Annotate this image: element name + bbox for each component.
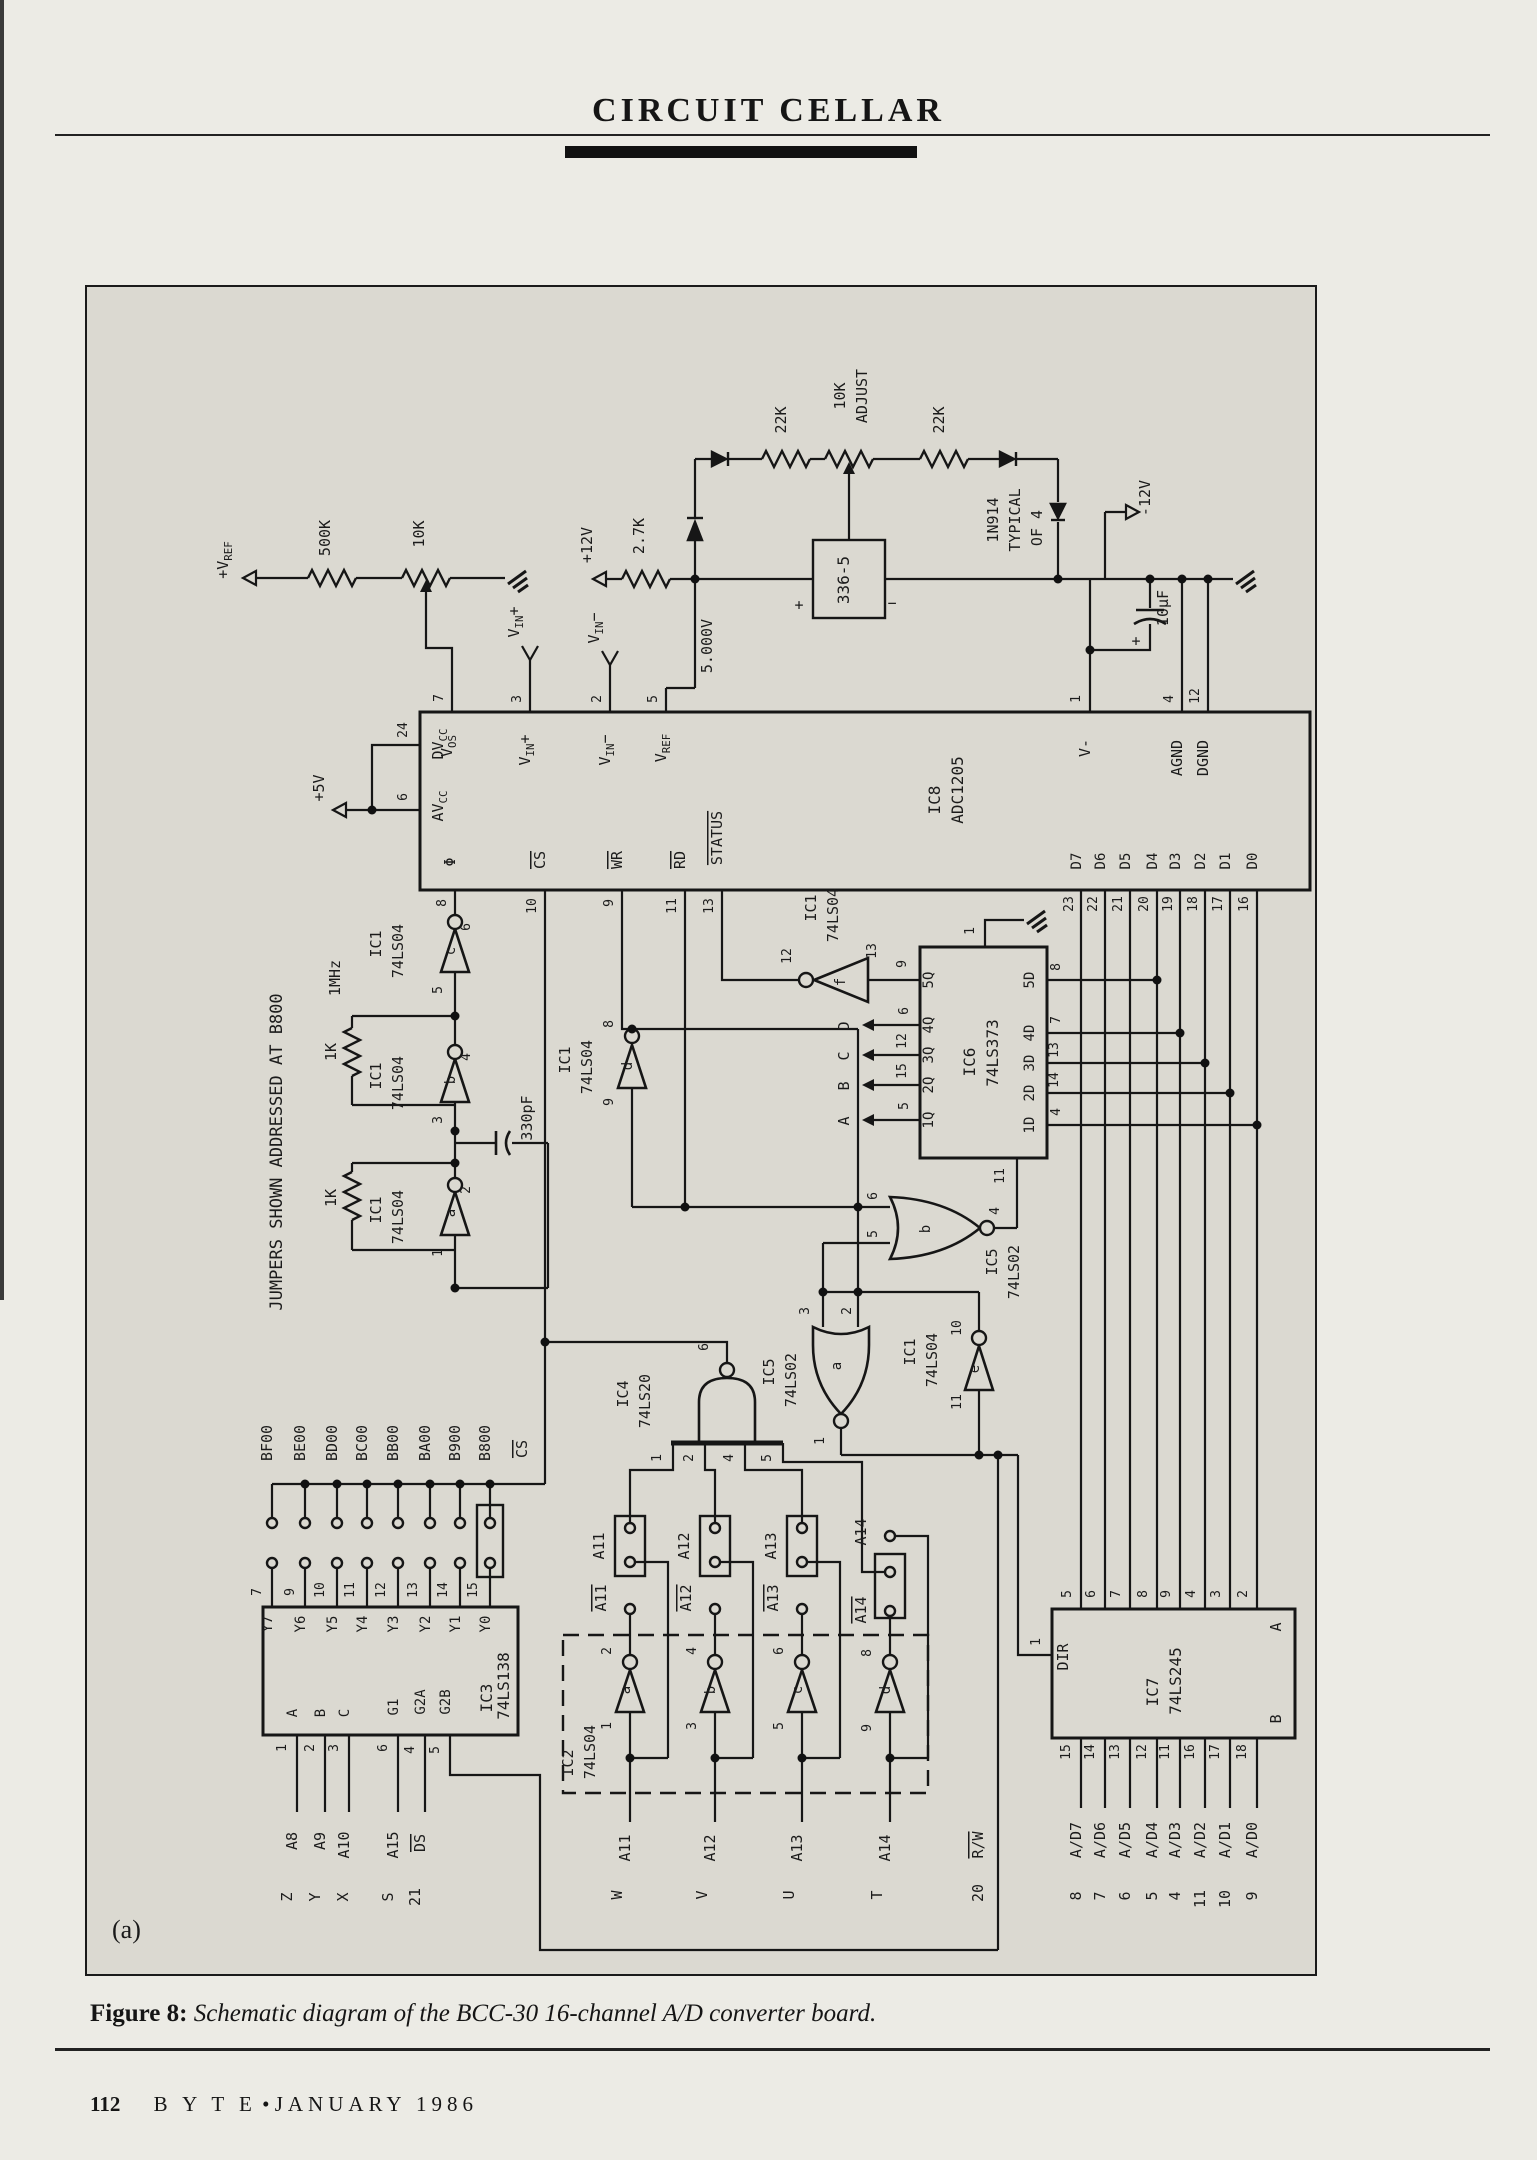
- schematic-label: 6: [396, 793, 411, 801]
- magazine-name: B Y T E: [154, 2092, 257, 2116]
- schematic-label: 9: [602, 1098, 617, 1106]
- schematic-label: 7: [1109, 1590, 1124, 1598]
- schematic-label: 5: [431, 986, 446, 994]
- schematic-label: 10: [313, 1582, 328, 1598]
- schematic-label: 9: [602, 899, 617, 907]
- schematic-label: 74LS02: [1005, 1245, 1023, 1299]
- schematic-label: V: [693, 1890, 711, 1899]
- schematic-label: a: [443, 1209, 459, 1217]
- figure-caption: Figure 8: Schematic diagram of the BCC-3…: [90, 2000, 1490, 2028]
- schematic-label: VREF: [652, 734, 673, 763]
- schematic-label: 13: [1047, 1042, 1062, 1058]
- schematic-label: A: [285, 1708, 301, 1717]
- schematic-label: Y4: [355, 1616, 371, 1633]
- schematic-label: b: [443, 1076, 459, 1084]
- schematic-label: CS: [513, 1440, 531, 1458]
- schematic-label: 8: [1067, 1891, 1085, 1900]
- schematic-label: 1N914: [984, 497, 1002, 542]
- schematic-label: 7: [1091, 1891, 1109, 1900]
- schematic-label: 74LS04: [389, 1056, 407, 1110]
- schematic-label: 15: [466, 1582, 481, 1598]
- schematic-label: VIN+: [505, 606, 526, 637]
- wiper-arrows: [420, 462, 874, 1126]
- schematic-label: 7: [1049, 1016, 1064, 1024]
- schematic-label: CS: [531, 851, 549, 869]
- figure-caption-text: Schematic diagram of the BCC-30 16-chann…: [194, 2000, 877, 2027]
- ic2-dashed-box: [563, 1635, 928, 1793]
- schematic-label: 10: [1216, 1890, 1234, 1908]
- footer-bullet: •: [262, 2092, 269, 2116]
- schematic-label: 23: [1062, 896, 1077, 912]
- schematic-label: A12: [675, 1532, 693, 1559]
- schematic-label: 3: [798, 1307, 813, 1315]
- schematic-label: Y3: [386, 1616, 402, 1633]
- schematic-label: 5.000V: [698, 619, 716, 673]
- schematic-label: ADC1205: [948, 756, 967, 823]
- page-number: 112: [90, 2092, 120, 2116]
- schematic-label: 10K: [831, 382, 849, 409]
- schematic-label: T: [868, 1890, 886, 1899]
- schematic-label: 6: [866, 1192, 881, 1200]
- schematic-label: 4: [459, 1053, 474, 1061]
- schematic-label: 11: [665, 898, 680, 914]
- schematic-label: 15: [895, 1063, 910, 1079]
- schematic-label: U: [780, 1890, 798, 1899]
- schematic-label: 5: [866, 1230, 881, 1238]
- schematic-label: -12V: [1136, 480, 1154, 516]
- schematic-label: 12: [1135, 1744, 1150, 1760]
- schematic-label: DGND: [1194, 740, 1212, 776]
- schematic-label: Z: [278, 1892, 296, 1901]
- schematic-label: 5D: [1022, 972, 1038, 989]
- schematic-label: A/D6: [1091, 1822, 1109, 1858]
- schematic-label: D3: [1168, 853, 1184, 870]
- schematic-label: 22K: [772, 406, 790, 433]
- schematic-label: OF 4: [1028, 510, 1046, 546]
- schematic-label: 12: [1188, 688, 1203, 704]
- schematic-label: 18: [1235, 1744, 1250, 1760]
- schematic-label: IC1: [901, 1338, 919, 1365]
- schematic-label: B800: [476, 1425, 494, 1461]
- schematic-label: b: [918, 1225, 934, 1233]
- schematic-label: a: [829, 1362, 845, 1370]
- schematic-label: 6: [1084, 1590, 1099, 1598]
- schematic-label: 3: [327, 1744, 342, 1752]
- schematic-label: AGND: [1168, 740, 1186, 776]
- schematic-labels: +VREF500K10K7+12V2.7K3VIN+VIN−255.000V22…: [214, 369, 1285, 1908]
- schematic-label: 14: [1047, 1072, 1062, 1088]
- schematic-label: 20: [969, 1884, 987, 1902]
- schematic-label: R/W: [969, 1830, 987, 1858]
- schematic-label: d: [878, 1686, 894, 1694]
- schematic-label: 1: [600, 1722, 615, 1730]
- schematic-label: 3: [685, 1722, 700, 1730]
- schematic-label: 4: [988, 1207, 1003, 1215]
- schematic-label: 1: [275, 1744, 290, 1752]
- schematic-label: 1D: [1022, 1117, 1038, 1134]
- figure-number: Figure 8:: [90, 2000, 187, 2027]
- schematic-label: VIN−: [585, 612, 606, 643]
- schematic-label: 6: [772, 1647, 787, 1655]
- schematic-label: A11: [590, 1532, 608, 1559]
- page-footer: 112 B Y T E • JANUARY 1986: [90, 2092, 478, 2117]
- schematic-label: 1K: [322, 1043, 340, 1061]
- schematic-label: 74LS02: [782, 1353, 800, 1407]
- schematic-label: Y1: [448, 1616, 464, 1633]
- schematic-label: 9: [860, 1724, 875, 1732]
- schematic-label: +: [794, 596, 803, 614]
- schematic-label: 74LS04: [581, 1725, 599, 1779]
- schematic-label: A10: [335, 1831, 353, 1858]
- schematic-label: 16: [1237, 896, 1252, 912]
- schematic-label: DIR: [1054, 1642, 1072, 1670]
- ground-symbol: [1027, 911, 1047, 932]
- schematic-label: Y6: [293, 1616, 309, 1633]
- schematic-label: G2B: [438, 1689, 454, 1714]
- schematic-label: D1: [1218, 853, 1234, 870]
- caption-rule: [55, 2048, 1490, 2051]
- schematic-label: A8: [283, 1832, 301, 1850]
- schematic-label: 2: [600, 1647, 615, 1655]
- schematic-label: 6: [1116, 1891, 1134, 1900]
- schematic-label: 5: [897, 1102, 912, 1110]
- schematic-label: B900: [446, 1425, 464, 1461]
- schematic-label: 15: [1059, 1744, 1074, 1760]
- schematic-label: 22: [1086, 896, 1101, 912]
- schematic-label: 5: [1060, 1590, 1075, 1598]
- schematic-label: ADJUST: [853, 369, 871, 423]
- schematic-label: D2: [1193, 853, 1209, 870]
- schematic-label: 336-5: [834, 556, 853, 604]
- schematic-label: 7: [250, 1588, 265, 1596]
- schematic-label: 5Q: [921, 972, 937, 989]
- schematic-label: TYPICAL: [1006, 488, 1024, 551]
- schematic-label: 6: [459, 923, 474, 931]
- schematic-label: 10: [525, 898, 540, 914]
- schematic-diagram: +VREF500K10K7+12V2.7K3VIN+VIN−255.000V22…: [0, 0, 1537, 2160]
- schematic-label: A: [835, 1116, 853, 1125]
- schematic-label: C: [337, 1709, 353, 1717]
- schematic-label: D4: [1145, 853, 1161, 870]
- schematic-label: 18: [1186, 896, 1201, 912]
- schematic-label: 4: [1162, 695, 1177, 703]
- schematic-label: 11: [343, 1582, 358, 1598]
- schematic-label: IC2: [559, 1749, 577, 1776]
- ground-symbol: [508, 571, 528, 592]
- schematic-label: A13: [762, 1532, 780, 1559]
- schematic-label: JUMPERS SHOWN ADDRESSED AT B800: [267, 993, 287, 1310]
- schematic-label: 22K: [930, 406, 948, 433]
- schematic-label: 74LS04: [578, 1040, 596, 1094]
- schematic-label: 1K: [322, 1189, 340, 1207]
- schematic-label: 9: [1159, 1590, 1174, 1598]
- schematic-label: Φ: [441, 857, 459, 866]
- schematic-label: BC00: [353, 1425, 371, 1461]
- schematic-label: RD: [671, 851, 689, 869]
- schematic-label: 8: [435, 899, 450, 907]
- schematic-label: 11: [993, 1168, 1008, 1184]
- schematic-label: WR: [608, 850, 626, 869]
- schematic-label: 10: [950, 1320, 965, 1336]
- schematic-label: +12V: [578, 527, 596, 563]
- schematic-label: f: [833, 978, 849, 986]
- schematic-label: 5: [1143, 1891, 1161, 1900]
- schematic-label: Y0: [478, 1616, 494, 1633]
- schematic-label: 74LS20: [636, 1374, 654, 1428]
- schematic-label: 4: [403, 1746, 418, 1754]
- schematic-label: DS: [411, 1834, 429, 1852]
- schematic-label: b: [703, 1686, 719, 1694]
- schematic-label: c: [790, 1686, 806, 1694]
- schematic-label: BA00: [416, 1425, 434, 1461]
- schematic-label: 5: [428, 1746, 443, 1754]
- schematic-label: IC6: [960, 1048, 979, 1077]
- schematic-label: 6: [697, 1343, 712, 1351]
- capacitors: [496, 610, 1166, 1155]
- schematic-label: +5V: [310, 774, 328, 801]
- schematic-label: 14: [1083, 1744, 1098, 1760]
- schematic-label: 4Q: [921, 1017, 937, 1034]
- schematic-label: Y7: [260, 1616, 276, 1633]
- schematic-label: B: [835, 1081, 853, 1090]
- schematic-label: BF00: [258, 1425, 276, 1461]
- schematic-label: A/D7: [1067, 1822, 1085, 1858]
- schematic-label: A/D0: [1243, 1822, 1261, 1858]
- schematic-label: AVCC: [429, 790, 450, 821]
- schematic-label: 11: [950, 1394, 965, 1410]
- schematic-label: +VREF: [214, 541, 235, 579]
- schematic-label: V-: [1076, 739, 1094, 757]
- schematic-label: A13: [788, 1834, 806, 1861]
- schematic-label: 12: [780, 948, 795, 964]
- schematic-label: 2D: [1022, 1085, 1038, 1102]
- schematic-label: 2.7K: [630, 518, 648, 554]
- schematic-label: 330pF: [518, 1095, 536, 1140]
- schematic-label: 1MHz: [326, 960, 344, 996]
- schematic-label: 2: [1236, 1590, 1251, 1598]
- schematic-label: −: [887, 594, 896, 612]
- schematic-label: 13: [406, 1582, 421, 1598]
- schematic-label: 2: [840, 1307, 855, 1315]
- schematic-label: S: [379, 1892, 397, 1901]
- schematic-label: 5: [646, 695, 661, 703]
- schematic-label: B: [313, 1709, 329, 1717]
- schematic-label: A12: [677, 1584, 695, 1611]
- schematic-label: A/D4: [1143, 1822, 1161, 1858]
- schematic-label: D7: [1069, 853, 1085, 870]
- schematic-label: D: [835, 1021, 853, 1030]
- schematic-label: IC1: [556, 1046, 574, 1073]
- schematic-label: A/D1: [1216, 1822, 1234, 1858]
- schematic-label: D6: [1093, 853, 1109, 870]
- schematic-label: 3: [510, 695, 525, 703]
- schematic-label: IC4: [614, 1380, 632, 1407]
- schematic-label: A11: [616, 1834, 634, 1861]
- schematic-label: G1: [386, 1699, 402, 1716]
- magazine-page: { "header": { "title": "CIRCUIT CELLAR" …: [0, 0, 1537, 2160]
- schematic-label: 17: [1211, 896, 1226, 912]
- schematic-label: 12: [374, 1582, 389, 1598]
- schematic-label: A12: [701, 1834, 719, 1861]
- schematic-label: D0: [1245, 853, 1261, 870]
- schematic-label: a: [618, 1686, 634, 1694]
- schematic-label: 2: [303, 1744, 318, 1752]
- schematic-label: 24: [396, 722, 411, 738]
- schematic-label: 74LS138: [494, 1652, 513, 1719]
- schematic-label: 5: [772, 1722, 787, 1730]
- schematic-label: 3D: [1022, 1055, 1038, 1072]
- schematic-label: 12: [895, 1033, 910, 1049]
- schematic-label: d: [620, 1062, 636, 1070]
- jumper-posts: [267, 1518, 895, 1616]
- schematic-label: IC7: [1143, 1678, 1162, 1707]
- schematic-label: 6: [376, 1744, 391, 1752]
- schematic-label: 3: [431, 1116, 446, 1124]
- schematic-label: 1: [1029, 1638, 1044, 1646]
- schematic-label: 1Q: [921, 1112, 937, 1129]
- schematic-label: 1: [431, 1249, 446, 1257]
- schematic-label: c: [443, 947, 459, 955]
- schematic-label: 74LS373: [983, 1019, 1002, 1086]
- schematic-label: D5: [1118, 853, 1134, 870]
- schematic-label: BB00: [384, 1425, 402, 1461]
- schematic-label: A: [1267, 1622, 1285, 1631]
- schematic-label: A15: [384, 1831, 402, 1858]
- schematic-label: B: [1267, 1714, 1285, 1723]
- schematic-label: 4: [1184, 1590, 1199, 1598]
- schematic-label: 74LS04: [824, 888, 842, 942]
- schematic-label: e: [967, 1365, 983, 1373]
- schematic-label: 2: [459, 1186, 474, 1194]
- schematic-label: 19: [1161, 896, 1176, 912]
- schematic-label: 4: [1166, 1891, 1184, 1900]
- schematic-label: 8: [1049, 963, 1064, 971]
- schematic-label: 6: [897, 1007, 912, 1015]
- schematic-label: IC1: [802, 894, 820, 921]
- schematic-label: 7: [432, 694, 447, 702]
- schematic-label: C: [835, 1051, 853, 1060]
- schematic-label: 13: [702, 898, 717, 914]
- schematic-label: Y: [306, 1892, 324, 1901]
- schematic-label: 74LS04: [389, 924, 407, 978]
- schematic-label: 14: [436, 1582, 451, 1598]
- schematic-label: A14: [852, 1518, 870, 1545]
- schematic-label: 2Q: [921, 1077, 937, 1094]
- schematic-label: 10µF: [1154, 590, 1172, 626]
- schematic-label: 9: [1243, 1891, 1261, 1900]
- schematic-label: IC8: [925, 786, 944, 815]
- schematic-label: 13: [1108, 1744, 1123, 1760]
- schematic-label: 1: [813, 1437, 828, 1445]
- terminal-arrows: [243, 505, 1139, 817]
- schematic-label: 9: [895, 960, 910, 968]
- schematic-label: 74LS245: [1166, 1647, 1185, 1714]
- schematic-label: A13: [764, 1584, 782, 1611]
- schematic-label: IC5: [760, 1358, 778, 1385]
- schematic-label: IC1: [367, 1062, 385, 1089]
- schematic-label: A14: [876, 1834, 894, 1861]
- schematic-label: 4D: [1022, 1025, 1038, 1042]
- schematic-label: A/D3: [1166, 1822, 1184, 1858]
- schematic-label: +: [1131, 632, 1140, 650]
- schematic-label: 8: [1136, 1590, 1151, 1598]
- schematic-label: 2: [682, 1454, 697, 1462]
- schematic-label: Y5: [325, 1616, 341, 1633]
- schematic-label: 9: [283, 1588, 298, 1596]
- schematic-label: IC1: [367, 930, 385, 957]
- schematic-label: W: [608, 1890, 626, 1900]
- schematic-label: 13: [865, 943, 880, 959]
- schematic-label: 21: [406, 1888, 424, 1906]
- schematic-label: A/D5: [1116, 1822, 1134, 1858]
- schematic-label: 21: [1111, 896, 1126, 912]
- schematic-label: IC5: [983, 1248, 1001, 1275]
- schematic-label: 2: [590, 695, 605, 703]
- schematic-label: 11: [1191, 1890, 1209, 1908]
- schematic-label: 4: [722, 1454, 737, 1462]
- schematic-label: 1: [650, 1454, 665, 1462]
- schematic-label: 3Q: [921, 1047, 937, 1064]
- schematic-label: A9: [311, 1832, 329, 1850]
- schematic-label: 4: [685, 1647, 700, 1655]
- schematic-label: 3: [1209, 1590, 1224, 1598]
- schematic-label: A/D2: [1191, 1822, 1209, 1858]
- schematic-label: 11: [1158, 1744, 1173, 1760]
- schematic-label: 74LS04: [389, 1190, 407, 1244]
- schematic-label: 1: [963, 927, 978, 935]
- schematic-label: 5: [760, 1454, 775, 1462]
- schematic-label: VIN+: [516, 734, 537, 765]
- schematic-label: X: [334, 1892, 352, 1901]
- schematic-label: 10K: [410, 520, 428, 547]
- issue-date: JANUARY 1986: [275, 2092, 478, 2116]
- schematic-label: 16: [1183, 1744, 1198, 1760]
- schematic-label: A14: [852, 1596, 870, 1623]
- schematic-label: DVCC: [429, 728, 450, 759]
- schematic-label: 20: [1137, 896, 1152, 912]
- schematic-label: 8: [602, 1020, 617, 1028]
- logic-gates: [441, 929, 993, 1712]
- ground-symbol: [1236, 571, 1256, 592]
- schematic-label: BD00: [323, 1425, 341, 1461]
- schematic-label: 4: [1049, 1108, 1064, 1116]
- schematic-label: 8: [860, 1649, 875, 1657]
- schematic-label: 500K: [316, 520, 334, 556]
- schematic-label: 1: [1069, 695, 1084, 703]
- schematic-label: 17: [1208, 1744, 1223, 1760]
- schematic-label: IC1: [367, 1196, 385, 1223]
- schematic-label: 74LS04: [923, 1333, 941, 1387]
- schematic-label: VIN−: [596, 734, 617, 765]
- schematic-label: A11: [592, 1584, 610, 1611]
- schematic-label: Y2: [418, 1616, 434, 1633]
- schematic-label: BE00: [291, 1425, 309, 1461]
- schematic-label: G2A: [413, 1689, 429, 1715]
- schematic-label: STATUS: [708, 811, 726, 865]
